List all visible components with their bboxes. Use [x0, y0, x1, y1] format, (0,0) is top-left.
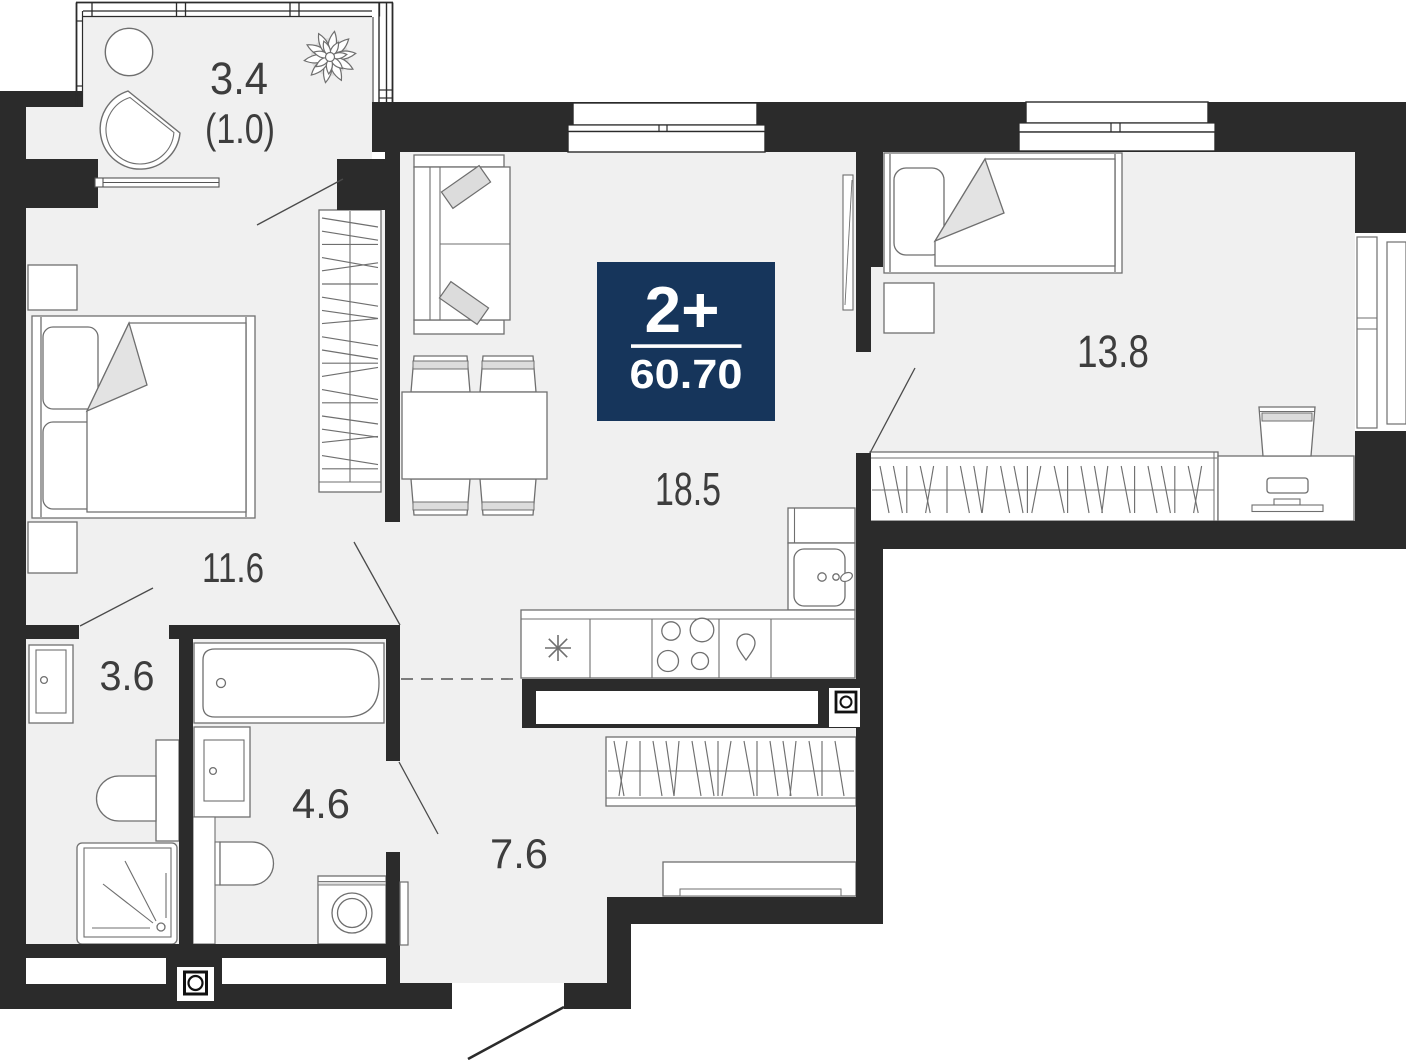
svg-text:18.5: 18.5 [655, 463, 721, 515]
svg-text:(1.0): (1.0) [205, 105, 275, 152]
svg-text:2+: 2+ [645, 273, 720, 346]
svg-text:3.4: 3.4 [210, 53, 268, 104]
svg-text:60.70: 60.70 [630, 351, 743, 397]
svg-text:11.6: 11.6 [202, 544, 264, 591]
svg-text:3.6: 3.6 [100, 652, 155, 699]
svg-text:13.8: 13.8 [1077, 326, 1149, 377]
svg-text:4.6: 4.6 [292, 780, 350, 827]
svg-text:7.6: 7.6 [490, 830, 548, 877]
